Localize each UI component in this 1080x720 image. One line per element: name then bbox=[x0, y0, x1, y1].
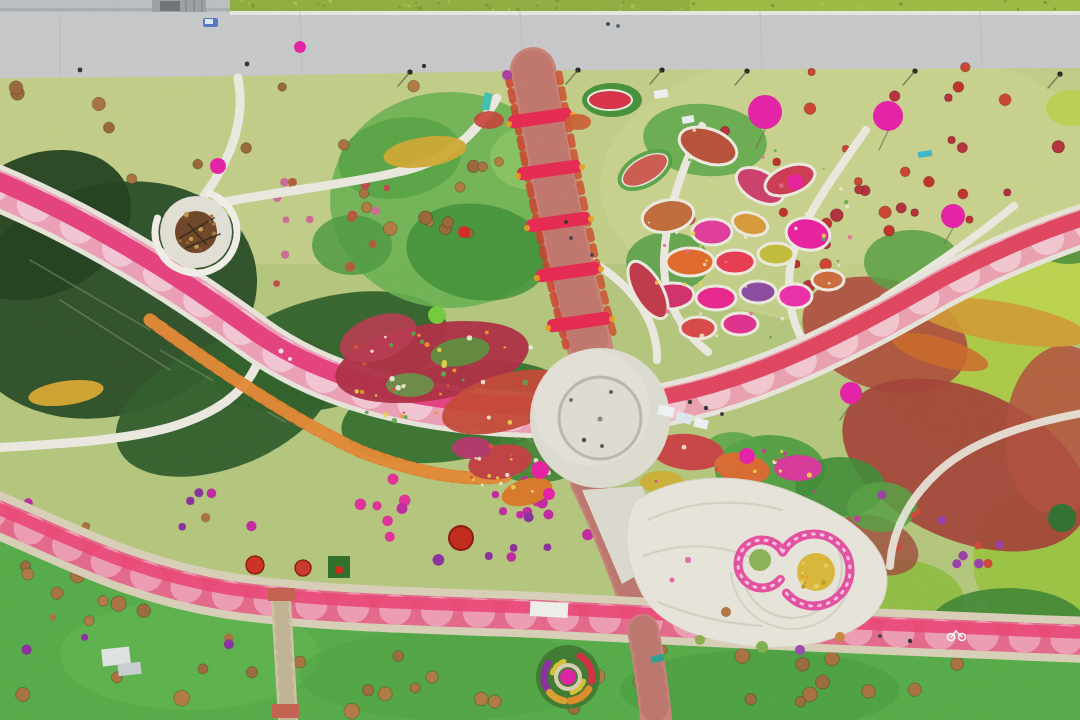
park-photo-canvas bbox=[0, 0, 1080, 720]
scene-root bbox=[0, 0, 1080, 720]
aerial-park-photo bbox=[0, 0, 1080, 720]
photo-grain bbox=[0, 0, 1080, 720]
